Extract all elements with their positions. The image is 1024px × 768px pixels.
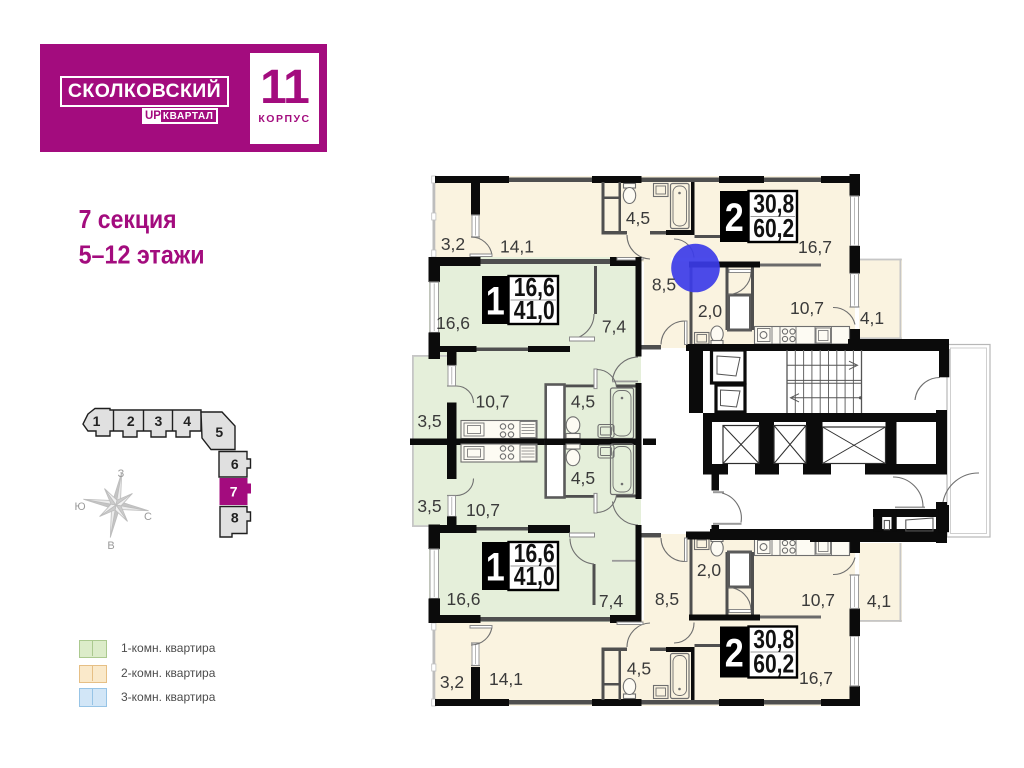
svg-text:10,7: 10,7 <box>790 298 824 318</box>
svg-text:3,2: 3,2 <box>440 672 464 692</box>
svg-text:10,7: 10,7 <box>801 590 835 610</box>
svg-text:8,5: 8,5 <box>652 275 676 295</box>
svg-text:7 секция: 7 секция <box>79 204 177 234</box>
svg-text:2,0: 2,0 <box>698 301 723 321</box>
svg-text:4,5: 4,5 <box>571 392 595 412</box>
svg-text:3,2: 3,2 <box>441 234 465 254</box>
svg-text:2: 2 <box>725 632 744 676</box>
svg-text:4: 4 <box>183 413 191 429</box>
svg-text:6: 6 <box>231 456 239 472</box>
svg-text:1: 1 <box>93 413 101 429</box>
svg-text:3,5: 3,5 <box>417 411 441 431</box>
svg-text:16,7: 16,7 <box>798 237 832 257</box>
svg-text:7,4: 7,4 <box>602 317 627 337</box>
svg-text:5–12 этажи: 5–12 этажи <box>79 240 205 270</box>
svg-text:4,5: 4,5 <box>626 208 650 228</box>
svg-text:2: 2 <box>725 196 744 240</box>
svg-text:В: В <box>107 540 114 552</box>
svg-text:8,5: 8,5 <box>655 589 679 609</box>
svg-text:10,7: 10,7 <box>466 500 500 520</box>
svg-text:60,2: 60,2 <box>753 213 794 243</box>
svg-text:С: С <box>144 511 152 523</box>
svg-text:16,6: 16,6 <box>436 313 470 333</box>
svg-text:7,4: 7,4 <box>599 591 624 611</box>
svg-text:4,5: 4,5 <box>571 468 595 488</box>
svg-text:З: З <box>118 468 125 480</box>
svg-text:41,0: 41,0 <box>514 295 555 325</box>
svg-text:14,1: 14,1 <box>500 237 534 257</box>
svg-text:2,0: 2,0 <box>697 560 722 580</box>
svg-text:3: 3 <box>155 413 163 429</box>
svg-text:2: 2 <box>127 413 135 429</box>
svg-text:10,7: 10,7 <box>475 392 509 412</box>
svg-text:1: 1 <box>486 280 505 324</box>
svg-text:1: 1 <box>486 546 505 590</box>
svg-text:4,1: 4,1 <box>867 591 891 611</box>
svg-text:14,1: 14,1 <box>489 669 523 689</box>
svg-text:7: 7 <box>230 484 238 500</box>
svg-text:Ю: Ю <box>74 501 85 513</box>
svg-text:3,5: 3,5 <box>417 496 441 516</box>
svg-text:16,6: 16,6 <box>446 589 480 609</box>
svg-text:4,1: 4,1 <box>860 308 884 328</box>
svg-text:8: 8 <box>231 510 239 526</box>
svg-text:16,7: 16,7 <box>799 668 833 688</box>
svg-text:4,5: 4,5 <box>627 659 651 679</box>
svg-text:60,2: 60,2 <box>753 649 794 679</box>
svg-text:5: 5 <box>215 424 223 440</box>
svg-text:41,0: 41,0 <box>514 561 555 591</box>
